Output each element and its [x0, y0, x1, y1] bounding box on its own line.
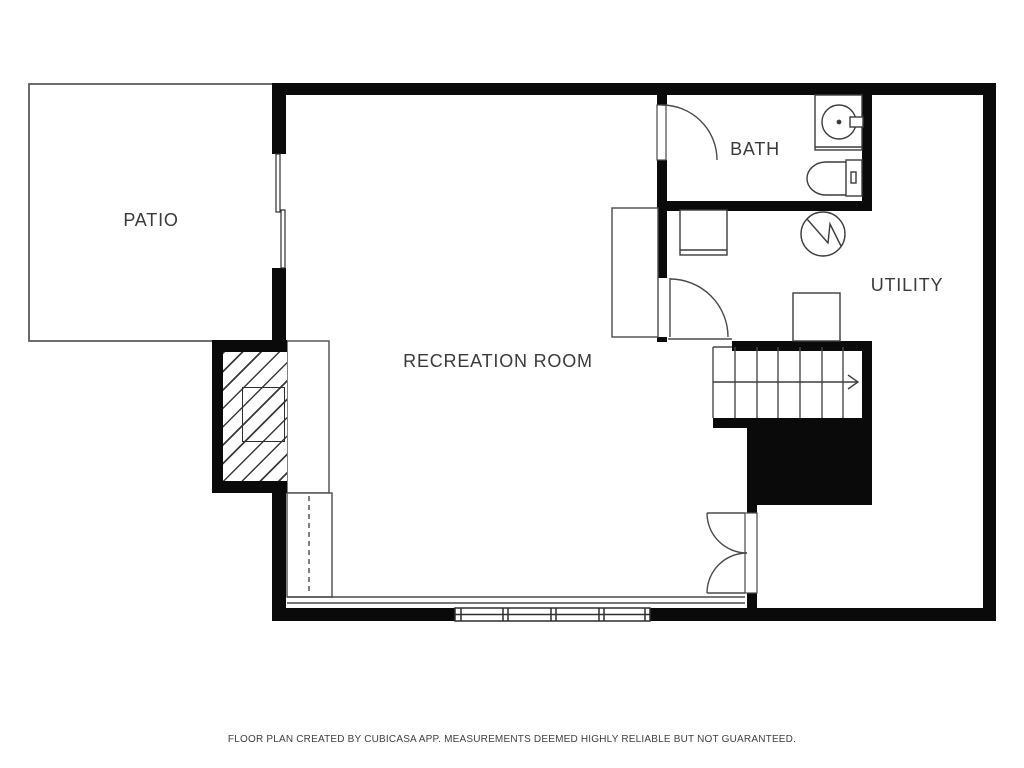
- room-label-recreation-room: RECREATION ROOM: [398, 351, 598, 371]
- stairs-right-wall: [862, 341, 872, 428]
- bottom-wall-left: [272, 608, 455, 621]
- hearth-slab: [287, 341, 329, 493]
- bath-door-swing-icon: [657, 105, 717, 160]
- top-wall: [272, 83, 996, 95]
- left-wall-middle: [272, 268, 286, 340]
- toilet-icon: [807, 160, 862, 196]
- appliance-icon-upper: [680, 210, 727, 255]
- double-door-icon: [707, 513, 757, 593]
- utility-door-swing-icon: [670, 278, 728, 337]
- bath-right-wall: [862, 95, 872, 201]
- left-wall-upper: [272, 83, 286, 154]
- room-label-utility: UTILITY: [857, 275, 957, 295]
- stairs-bottom-wall: [713, 418, 872, 428]
- appliance-icon-lower: [793, 293, 840, 341]
- entry-wall-stub-bottom: [747, 593, 757, 608]
- bottom-wall-right: [650, 608, 996, 621]
- window-icon: [455, 608, 650, 621]
- water-heater-icon: [801, 212, 845, 256]
- staircase: [713, 347, 858, 418]
- under-stairs-mass: [747, 428, 872, 505]
- interior-thin-lines: [287, 208, 745, 603]
- sliding-window-icon: [276, 154, 285, 268]
- walls: [272, 83, 996, 621]
- bath-left-wall-stub-top: [657, 95, 667, 105]
- room-label-bath: BATH: [715, 139, 795, 159]
- floor-plan: PATIO RECREATION ROOM BATH UTILITY FLOOR…: [0, 0, 1024, 768]
- bath-fixtures: [807, 95, 863, 196]
- entry-wall-stub-top: [747, 505, 757, 513]
- right-wall: [983, 83, 996, 621]
- left-wall-lower: [272, 493, 286, 608]
- sink-icon: [815, 95, 863, 150]
- footer-disclaimer: FLOOR PLAN CREATED BY CUBICASA APP. MEAS…: [0, 734, 1024, 745]
- fireplace-flue-outline: [242, 387, 285, 442]
- bath-left-wall-stub-bottom: [657, 337, 667, 342]
- stairs-top-wall: [732, 341, 872, 351]
- floor-plan-drawing: [0, 0, 1024, 768]
- room-label-patio: PATIO: [95, 210, 207, 230]
- utility-fixtures: [680, 210, 845, 341]
- counter-rect: [612, 208, 658, 337]
